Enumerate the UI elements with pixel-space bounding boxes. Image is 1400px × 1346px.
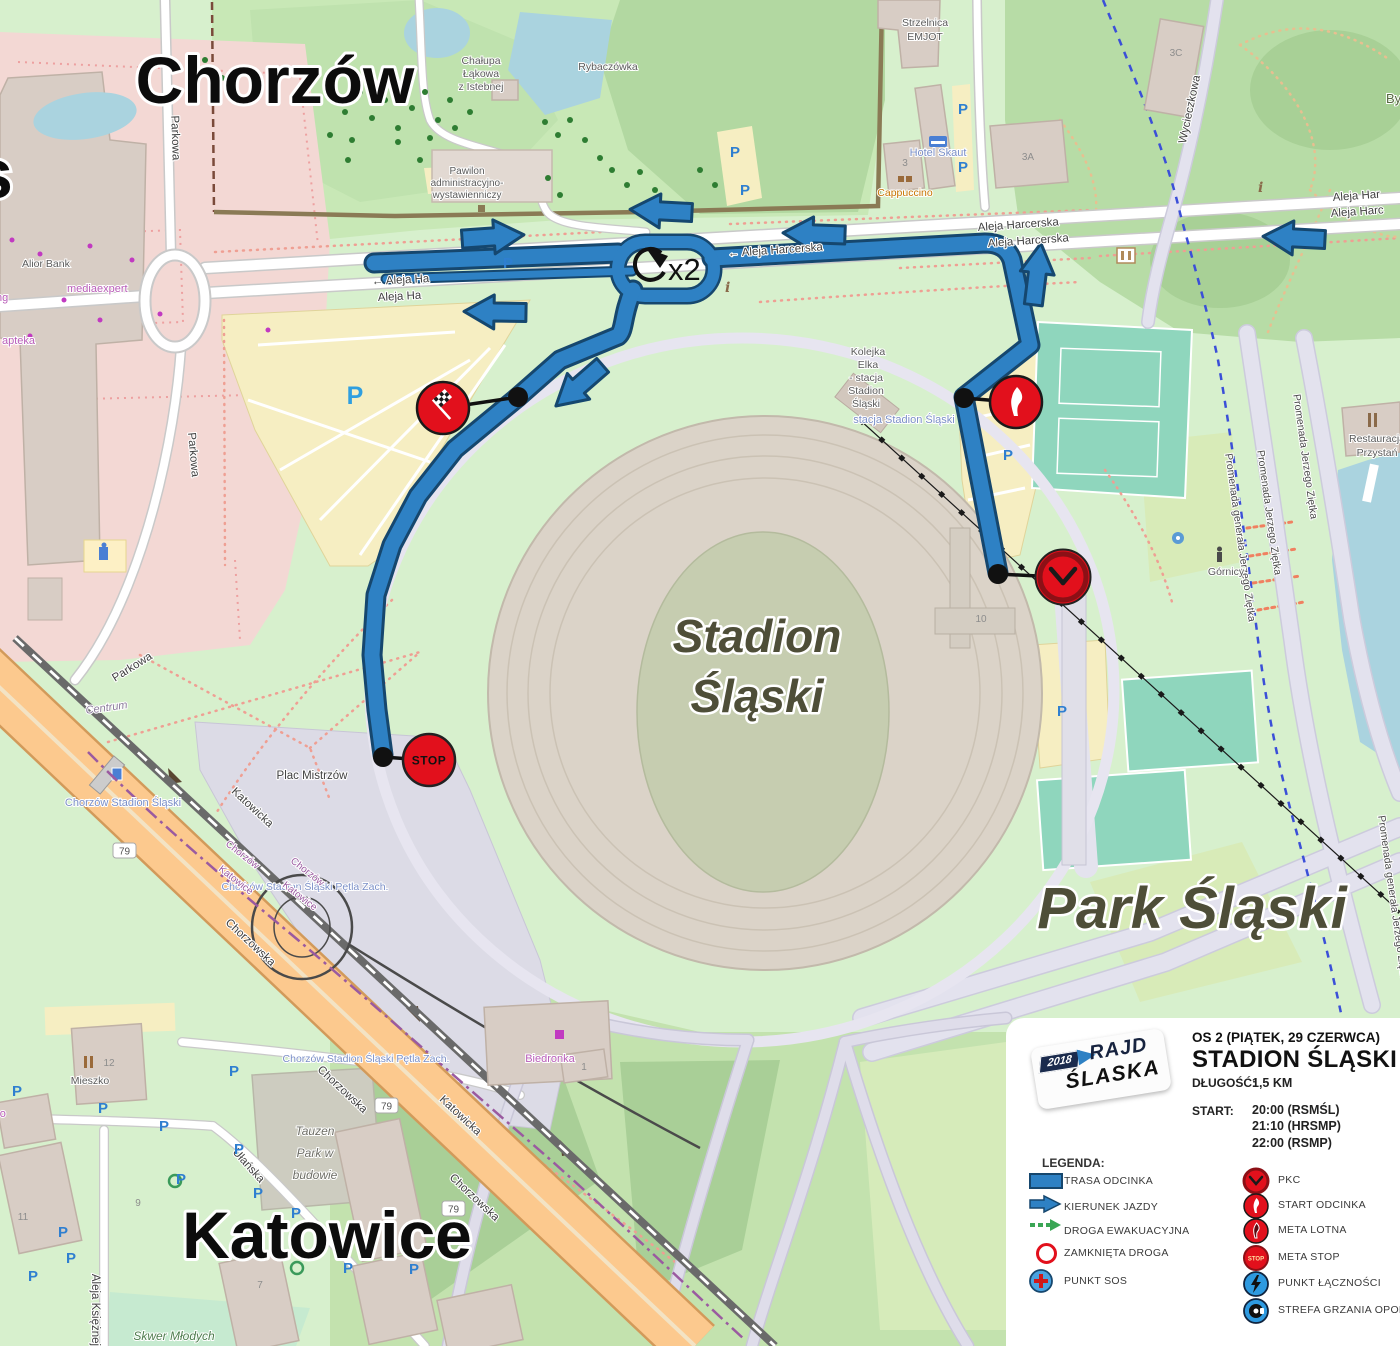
svg-text:Elka: Elka [858,359,879,371]
svg-text:naco: naco [0,1108,6,1120]
svg-text:P: P [958,159,968,176]
length-value: 1,5 KM [1252,1076,1292,1090]
loop-times-label: x2 [668,252,701,287]
svg-text:apteka: apteka [2,335,36,347]
svg-text:Cappuccino: Cappuccino [877,187,933,199]
svg-text:3A: 3A [1022,152,1035,163]
label-katowice: Katowice [182,1198,472,1272]
label-edge-partial: s [0,135,13,213]
svg-text:P: P [253,1185,263,1202]
svg-text:Park w: Park w [297,1146,335,1160]
start-odcinka-marker [990,376,1042,428]
route-bar-icon [1028,1173,1064,1189]
svg-text:P: P [98,1100,108,1117]
legend-panel: 2018 RAJD ŚLASKA OS 2 (PIĄTEK, 29 CZERWC… [1006,1018,1400,1346]
info-icon: i [1258,180,1263,196]
label-skwer: Skwer Młodych [133,1329,215,1343]
svg-text:Mieszko: Mieszko [71,1075,110,1087]
label-chorzow: Chorzów [136,43,415,117]
svg-text:z Istebnej: z Istebnej [459,81,504,93]
rally-logo: 2018 RAJD ŚLASKA [1030,1028,1172,1110]
svg-text:P: P [343,1260,353,1277]
svg-text:P: P [12,1083,22,1100]
svg-text:Chorzów Stadion Śląski: Chorzów Stadion Śląski [65,796,181,809]
svg-text:Śląski: Śląski [852,397,880,410]
svg-text:P: P [58,1224,68,1241]
label-stadion-2: Śląski [691,670,825,722]
map-screenshot: x2 [0,0,1400,1346]
pkc-marker [1036,550,1091,605]
svg-text:Aleja Księżnej: Aleja Księżnej [89,1274,101,1346]
svg-text:79: 79 [381,1102,393,1113]
svg-text:11: 11 [18,1212,29,1223]
svg-text:ng: ng [0,292,8,304]
svg-text:Parkowa: Parkowa [168,115,182,161]
svg-text:12: 12 [103,1058,115,1069]
svg-text:Górnicy: Górnicy [1208,566,1245,578]
legend-item-pkc: PKC [1242,1167,1301,1193]
legend-item-trasa: TRASA ODCINKA [1028,1168,1153,1194]
svg-text:79: 79 [119,847,131,858]
svg-text:By: By [1386,91,1400,106]
svg-text:Chałupa: Chałupa [461,55,500,67]
svg-text:P: P [28,1268,38,1285]
svg-text:P: P [347,382,364,410]
svg-text:7: 7 [257,1280,263,1291]
cafe-icon [898,176,904,182]
svg-text:3C: 3C [1170,48,1183,59]
svg-text:P: P [229,1063,239,1080]
label-plac-mistrzow: Plac Mistrzów [277,770,349,782]
svg-text:Hotel Skaut: Hotel Skaut [910,147,967,159]
svg-text:Tauzen: Tauzen [296,1124,335,1138]
svg-text:P: P [958,101,968,118]
legend-item-zamknieta: ZAMKNIĘTA DROGA [1028,1240,1169,1266]
restaurant-icon [84,1056,87,1068]
legend-item-metastop: STOP META STOP [1242,1244,1340,1270]
svg-text:stacja Stadion Śląski: stacja Stadion Śląski [853,413,955,426]
svg-text:Aleja Ha: Aleja Ha [378,290,423,304]
svg-text:9: 9 [135,1198,141,1209]
svg-text:Przystań: Przystań [1357,447,1398,459]
legend-item-lotna: META LOTNA [1242,1217,1347,1243]
stage-title: OS 2 (PIĄTEK, 29 CZERWCA) STADION ŚLĄSKI [1192,1030,1397,1074]
svg-text:P: P [1057,703,1067,720]
supermarket-icon [555,1030,564,1039]
svg-text:STOP: STOP [1248,1257,1264,1263]
svg-text:P: P [730,144,740,161]
svg-text:P: P [291,1205,301,1222]
svg-text:10: 10 [975,614,987,625]
start-times: 20:00 (RSMŚL) 21:10 (HRSMP) 22:00 (RSMP) [1252,1102,1341,1151]
legend-item-kierunek: KIERUNEK JAZDY [1028,1194,1158,1220]
svg-text:Łąkowa: Łąkowa [463,68,499,80]
svg-text:P: P [409,1261,419,1278]
stage-name: STADION ŚLĄSKI [1192,1046,1397,1074]
svg-text:Rybaczówka: Rybaczówka [578,61,638,73]
svg-text:79: 79 [448,1205,460,1216]
svg-text:P: P [159,1118,169,1135]
meta-stop-marker: STOP [403,734,455,786]
svg-text:- stacja: - stacja [849,372,883,384]
svg-text:P: P [176,1171,186,1188]
stage-subtitle: OS 2 (PIĄTEK, 29 CZERWCA) [1192,1030,1397,1045]
svg-text:EMJOT: EMJOT [907,31,943,43]
legend-item-strefa: STREFA GRZANIA OPON [1242,1297,1400,1323]
svg-text:mediaexpert: mediaexpert [67,283,128,295]
stop-label: STOP [412,754,446,768]
svg-text:P: P [503,255,513,272]
legend-item-lacznosc: PUNKT ŁĄCZNOŚCI [1242,1270,1381,1296]
svg-text:Restauracja: Restauracja [1349,433,1400,445]
label-stadion-1: Stadion [673,610,842,662]
svg-text:P: P [740,182,750,199]
label-park-slaski: Park Śląski [1037,876,1348,941]
svg-text:P: P [1003,447,1013,464]
svg-text:Strzelnica: Strzelnica [902,17,948,29]
svg-text:P: P [234,1141,244,1158]
svg-text:Pawilon: Pawilon [449,166,484,177]
svg-text:Kolejka: Kolejka [851,346,886,358]
svg-text:P: P [66,1250,76,1267]
red-ring-icon [1028,1243,1064,1264]
svg-text:Chorzów Stadion Śląski Pętla Z: Chorzów Stadion Śląski Pętla Zach. [283,1052,450,1065]
legend-item-start: START ODCINKA [1242,1192,1366,1218]
svg-text:1: 1 [581,1062,587,1073]
info-icon: i [725,280,730,296]
meta-lotna-marker [417,382,469,434]
svg-text:wystawienniczy: wystawienniczy [432,190,502,201]
svg-text:budowie: budowie [293,1168,338,1182]
svg-text:Biedronka: Biedronka [525,1053,575,1065]
svg-text:administracyjno-: administracyjno- [431,178,504,189]
svg-text:Stadion: Stadion [848,385,884,397]
toilets-icon [1117,248,1135,263]
svg-text:3: 3 [902,158,908,169]
svg-text:Alior Bank: Alior Bank [22,258,71,270]
monument-icon [1217,552,1222,562]
start-label: START: [1192,1104,1234,1118]
legend-item-sos: PUNKT SOS [1028,1268,1127,1294]
restaurant-icon [1368,413,1371,427]
length-label: DŁUGOŚĆ: [1192,1076,1256,1090]
